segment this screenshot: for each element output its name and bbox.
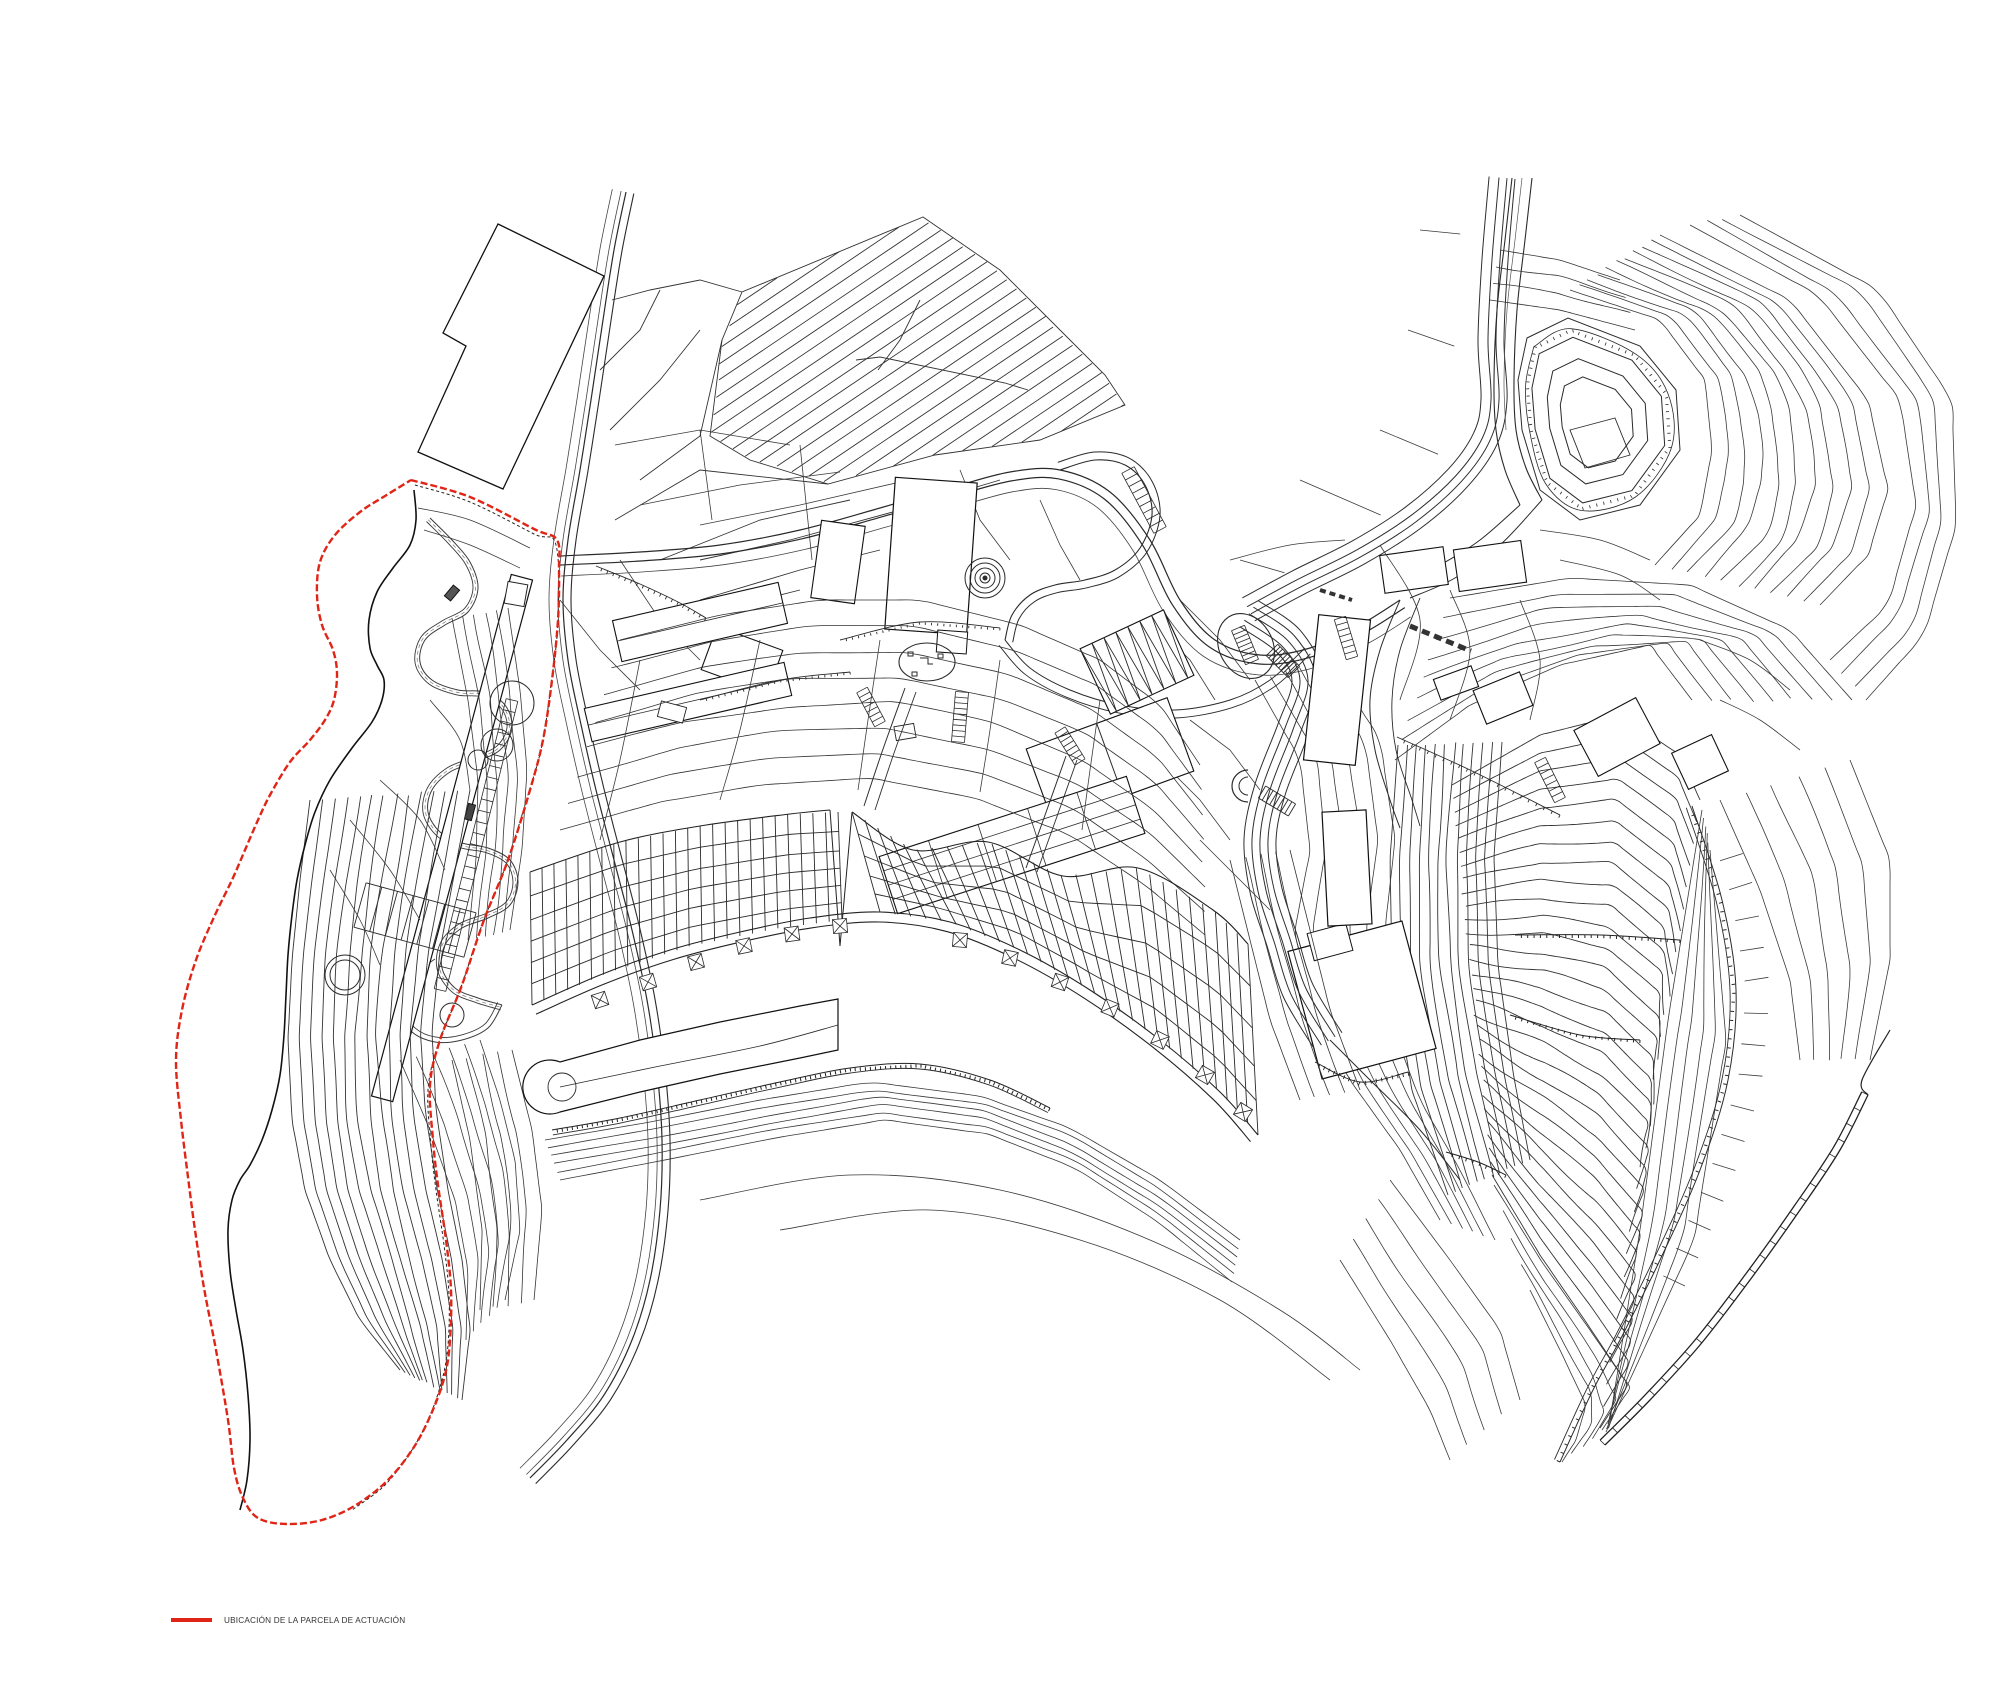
svg-text:UBICACIÓN DE LA PARCELA DE ACT: UBICACIÓN DE LA PARCELA DE ACTUACIÓN (224, 1615, 405, 1625)
